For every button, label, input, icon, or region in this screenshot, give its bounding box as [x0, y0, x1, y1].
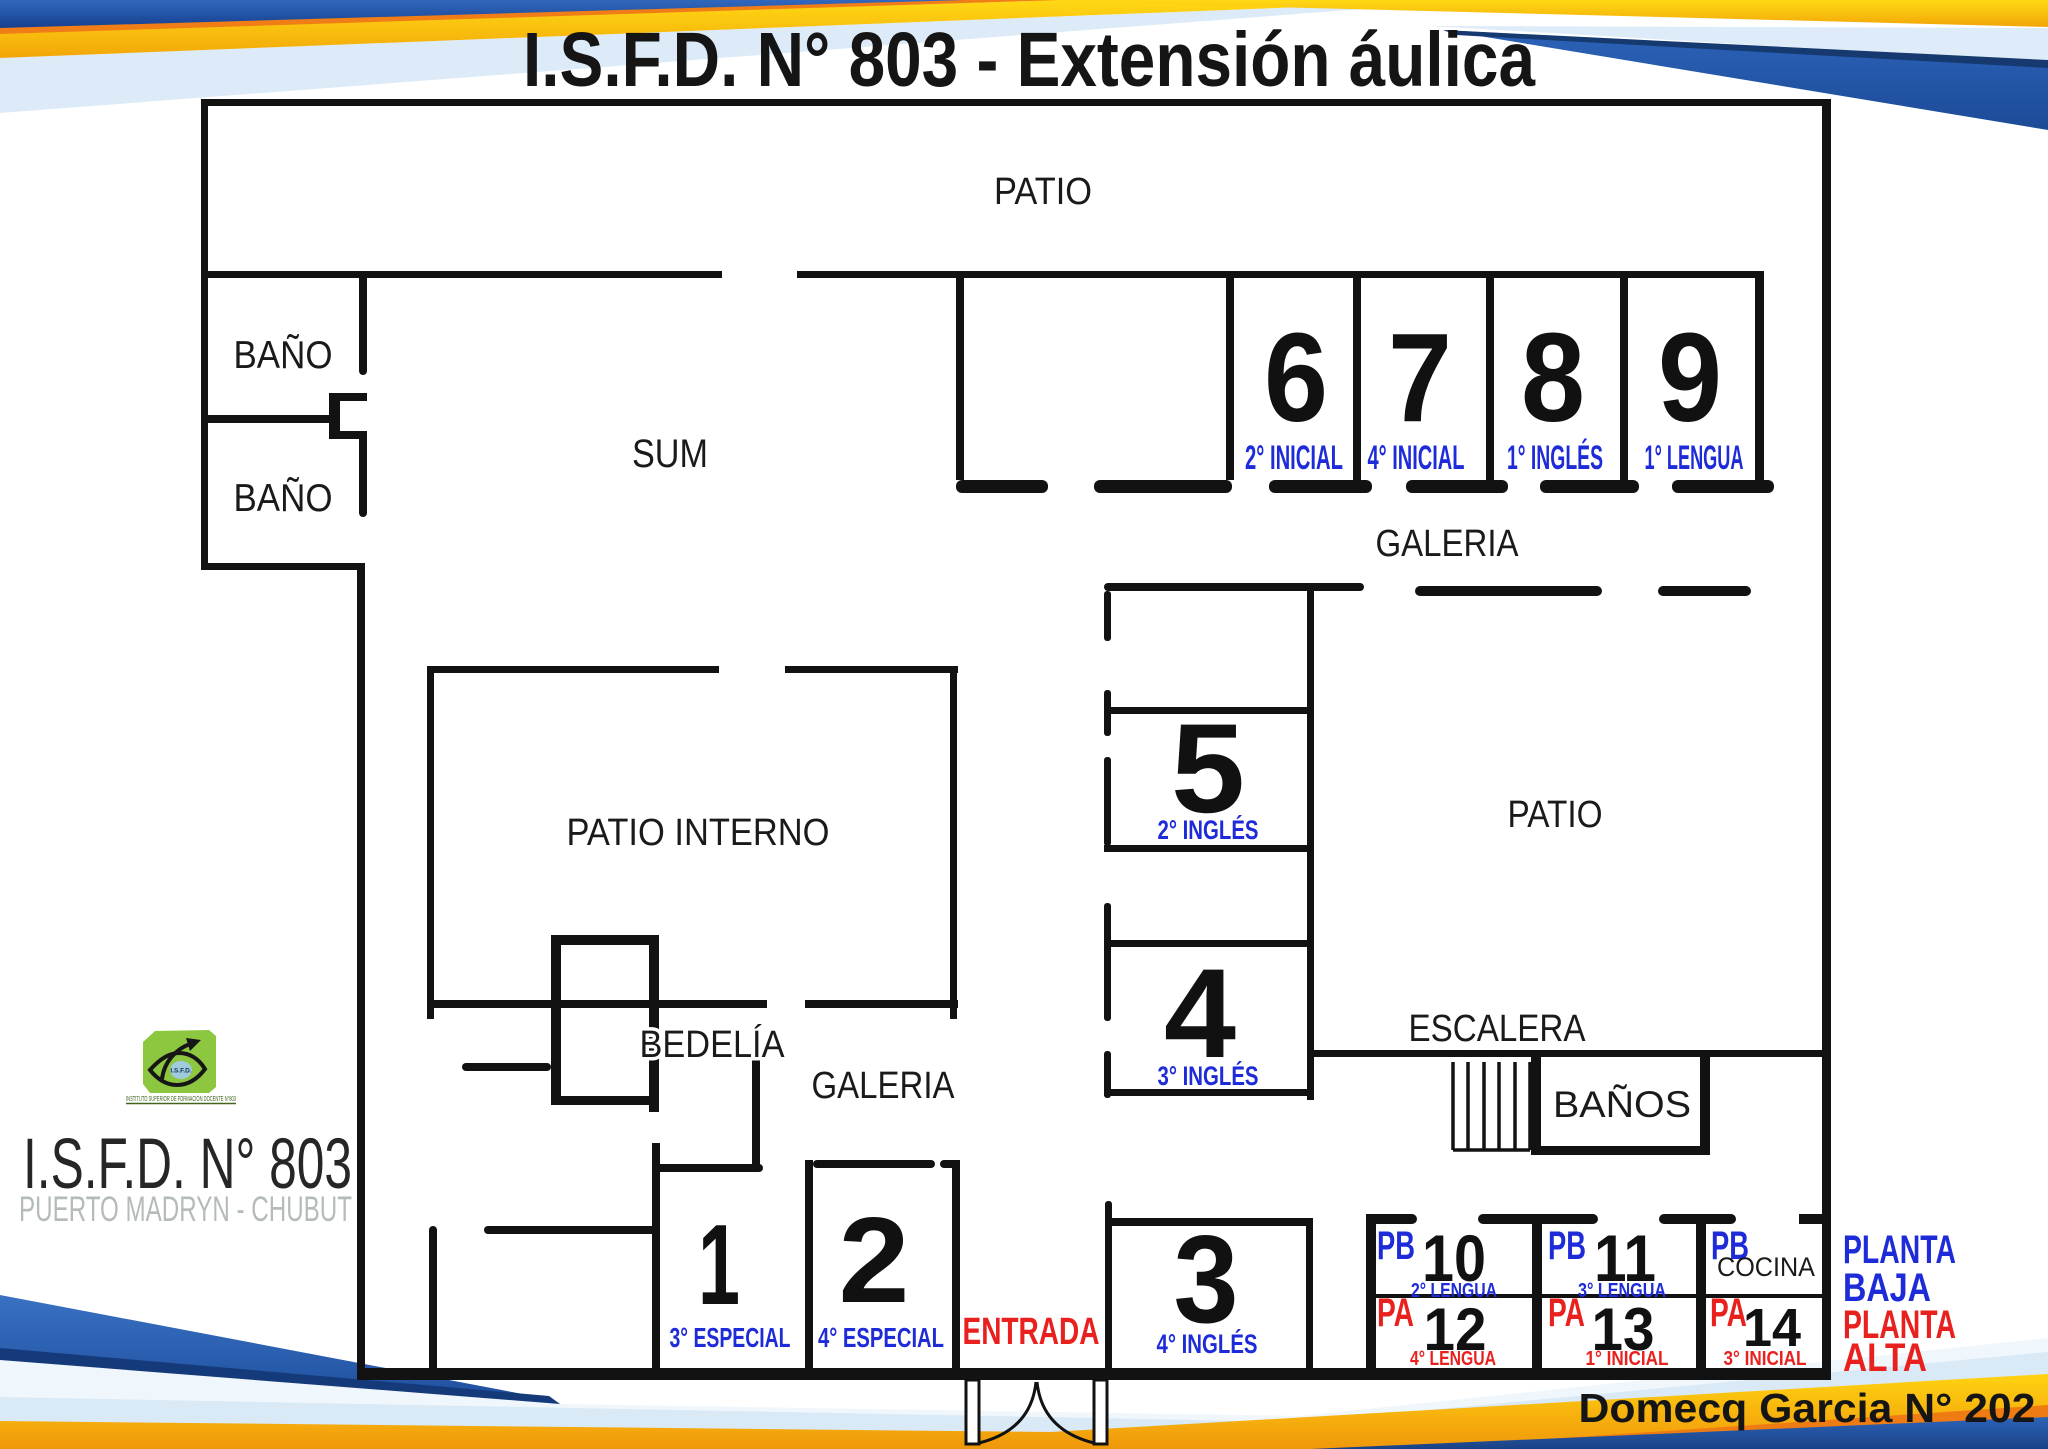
svg-text:8: 8 [1521, 307, 1585, 448]
svg-text:3° ESPECIAL: 3° ESPECIAL [670, 1322, 791, 1353]
svg-text:PB: PB [1377, 1224, 1415, 1268]
svg-text:4° INGLÉS: 4° INGLÉS [1157, 1328, 1258, 1359]
svg-text:Domecq Garcia N° 202: Domecq Garcia N° 202 [1579, 1385, 2036, 1431]
svg-text:4° INICIAL: 4° INICIAL [1368, 439, 1465, 477]
svg-text:4° LENGUA: 4° LENGUA [1410, 1348, 1496, 1370]
svg-text:2° INGLÉS: 2° INGLÉS [1158, 814, 1259, 845]
svg-text:PA: PA [1548, 1291, 1585, 1335]
svg-text:PB: PB [1548, 1224, 1586, 1268]
svg-text:BAÑOS: BAÑOS [1553, 1084, 1691, 1125]
svg-text:1° LENGUA: 1° LENGUA [1645, 439, 1744, 477]
svg-text:1° INICIAL: 1° INICIAL [1586, 1348, 1669, 1370]
svg-text:GALERIA: GALERIA [812, 1065, 956, 1107]
svg-text:2° INICIAL: 2° INICIAL [1245, 439, 1343, 477]
svg-text:BAÑO: BAÑO [234, 477, 333, 520]
svg-text:PATIO: PATIO [994, 171, 1092, 213]
svg-text:PATIO: PATIO [1508, 794, 1603, 836]
svg-text:PUERTO MADRYN - CHUBUT: PUERTO MADRYN - CHUBUT [19, 1190, 352, 1229]
svg-text:PA: PA [1710, 1291, 1747, 1335]
svg-text:2: 2 [839, 1192, 910, 1328]
svg-text:PATIO INTERNO: PATIO INTERNO [567, 812, 830, 854]
svg-text:COCINA: COCINA [1717, 1252, 1815, 1282]
svg-text:9: 9 [1658, 307, 1722, 448]
svg-text:GALERIA: GALERIA [1376, 523, 1520, 565]
svg-text:6: 6 [1264, 307, 1328, 448]
svg-text:SUM: SUM [632, 432, 708, 476]
svg-text:7: 7 [1388, 307, 1452, 448]
svg-text:ESCALERA: ESCALERA [1409, 1008, 1587, 1050]
svg-text:INSTITUTO SUPERIOR DE FORMACIÓ: INSTITUTO SUPERIOR DE FORMACIÓN DOCENTE … [126, 1094, 236, 1103]
svg-text:ALTA: ALTA [1843, 1336, 1927, 1380]
svg-text:3° INICIAL: 3° INICIAL [1724, 1348, 1807, 1370]
svg-text:1° INGLÉS: 1° INGLÉS [1507, 439, 1603, 477]
svg-text:BAÑO: BAÑO [234, 334, 333, 377]
svg-text:BEDELÍA: BEDELÍA [640, 1023, 786, 1066]
svg-text:ENTRADA: ENTRADA [963, 1311, 1100, 1353]
svg-text:PA: PA [1377, 1291, 1414, 1335]
svg-text:3° INGLÉS: 3° INGLÉS [1158, 1060, 1259, 1091]
svg-text:I.S.F.D.: I.S.F.D. [170, 1068, 192, 1075]
svg-text:1: 1 [698, 1202, 740, 1329]
svg-text:4° ESPECIAL: 4° ESPECIAL [818, 1322, 944, 1353]
svg-text:I.S.F.D. N° 803 - Extensión áu: I.S.F.D. N° 803 - Extensión áulica [523, 17, 1536, 103]
